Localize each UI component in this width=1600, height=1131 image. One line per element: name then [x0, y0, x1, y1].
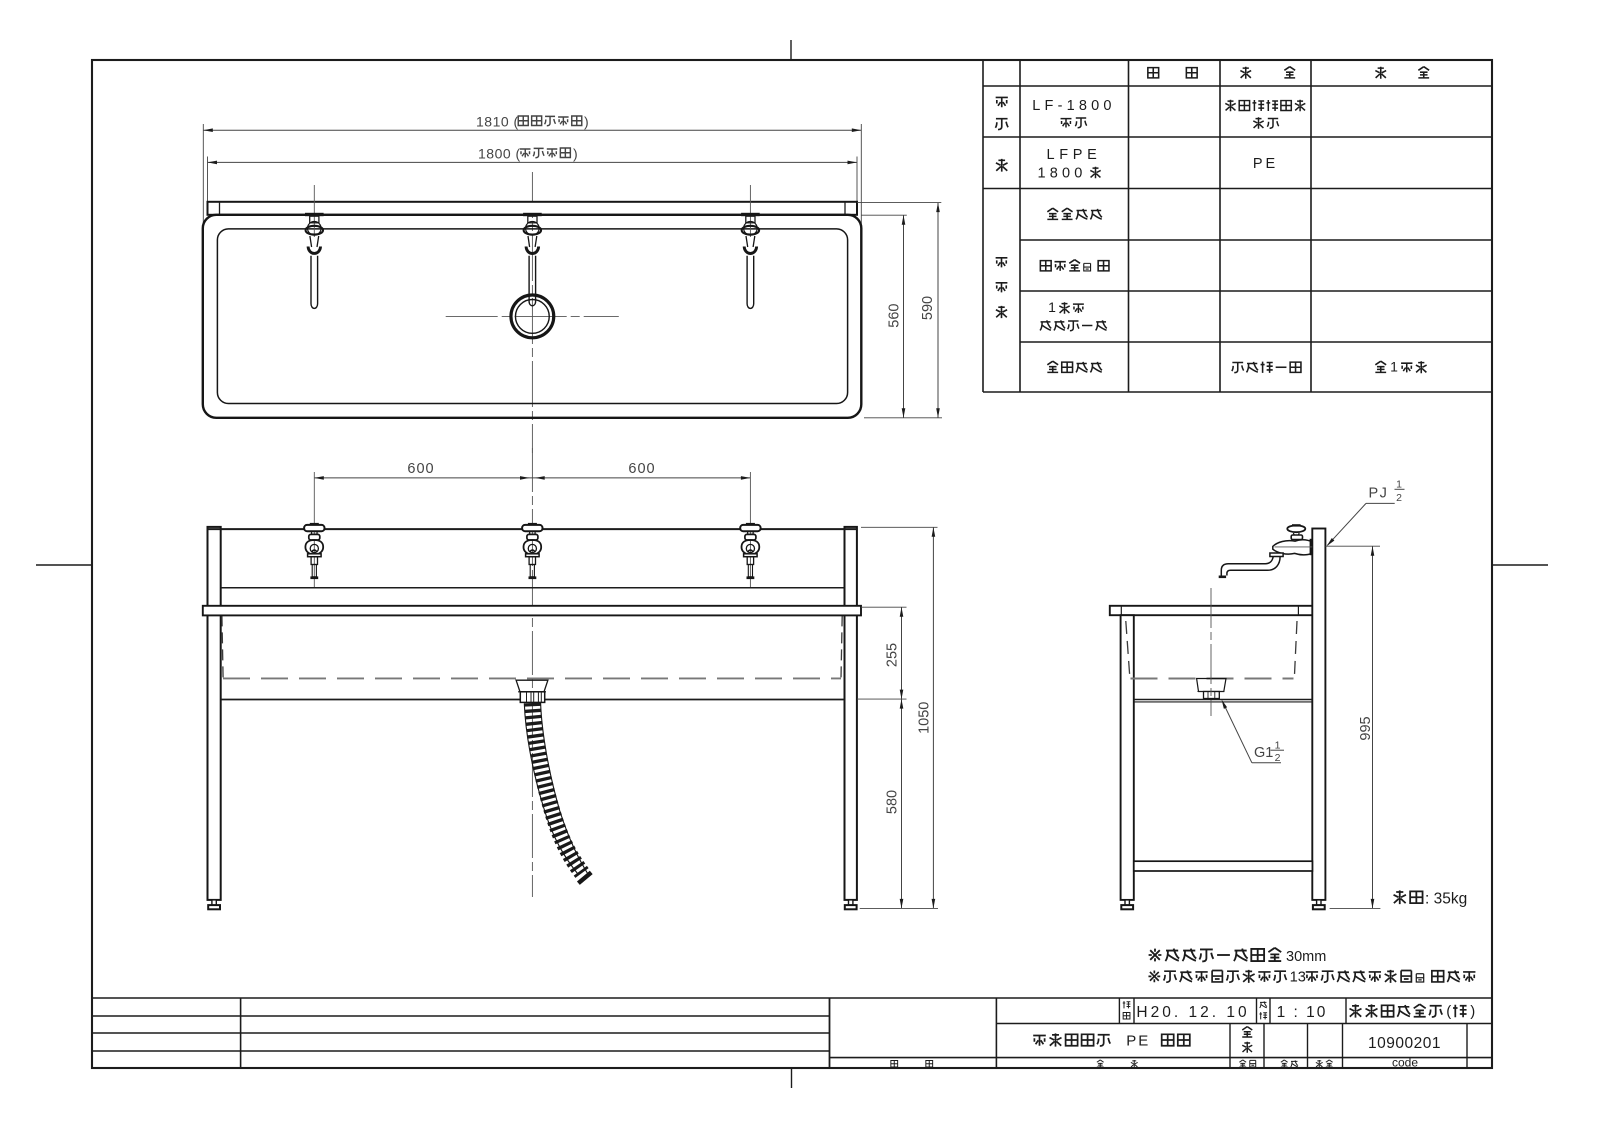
svg-text:580: 580	[884, 790, 900, 814]
svg-text:1 : 10: 1 : 10	[1277, 1004, 1328, 1021]
svg-text:1: 1	[1275, 740, 1281, 752]
svg-text:LFPE: LFPE	[1046, 147, 1101, 163]
svg-text:code: code	[1392, 1056, 1418, 1070]
svg-text:PJ: PJ	[1369, 486, 1389, 502]
svg-text:1: 1	[1390, 359, 1398, 375]
svg-text:2: 2	[1396, 492, 1402, 504]
svg-text:2: 2	[1275, 752, 1281, 764]
svg-text:995: 995	[1358, 716, 1374, 740]
svg-text:: 35kg: : 35kg	[1425, 891, 1467, 908]
svg-text:LF-1800: LF-1800	[1032, 98, 1115, 114]
svg-text:H20. 12. 10: H20. 12. 10	[1136, 1004, 1249, 1021]
svg-text:): )	[584, 114, 589, 130]
svg-text:600: 600	[628, 461, 655, 477]
svg-text:1050: 1050	[917, 702, 933, 734]
svg-text:10900201: 10900201	[1368, 1035, 1441, 1052]
svg-text:1: 1	[1048, 299, 1056, 315]
svg-text:1: 1	[1396, 479, 1402, 491]
svg-text:PE: PE	[1253, 156, 1278, 172]
svg-text:1800 (: 1800 (	[478, 146, 521, 162]
svg-text:30mm: 30mm	[1286, 949, 1326, 965]
svg-text:PE: PE	[1126, 1033, 1150, 1050]
svg-text:590: 590	[920, 296, 936, 320]
svg-text:): )	[573, 146, 578, 162]
svg-text:600: 600	[407, 461, 434, 477]
svg-text:(: (	[1446, 1003, 1451, 1020]
svg-text:): )	[1470, 1003, 1475, 1020]
svg-text:G1: G1	[1254, 745, 1273, 761]
svg-text:255: 255	[884, 643, 900, 667]
svg-text:1800: 1800	[1037, 166, 1086, 182]
svg-text:13: 13	[1290, 970, 1306, 986]
svg-text:560: 560	[887, 303, 903, 327]
svg-text:1810 (: 1810 (	[476, 114, 519, 130]
